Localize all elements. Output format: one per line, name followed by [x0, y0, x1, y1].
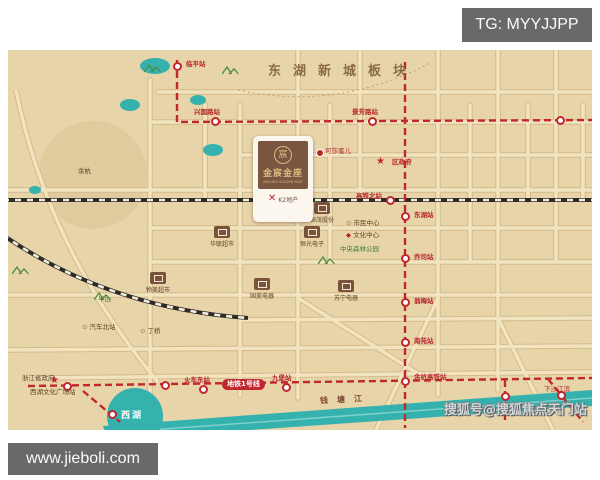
- metro-station-marker: [199, 385, 208, 394]
- map-text-label: 下沙江滨: [544, 386, 570, 393]
- brand-block-label: 华联超市: [202, 239, 242, 248]
- station-label: 乔司站: [414, 254, 434, 261]
- west-lake-label: 西湖: [121, 408, 143, 421]
- station-label: 东湖站: [414, 212, 434, 219]
- map-text-label: ⊙ 市民中心: [346, 220, 380, 227]
- brand-block-icon: [218, 229, 227, 236]
- station-label: 高铁北站: [356, 193, 382, 200]
- tg-contact-badge: TG: MYYJJPP: [462, 8, 592, 42]
- map-label-icon: ◆: [346, 231, 353, 239]
- sohu-watermark: 搜狐号@搜狐焦点天门站: [444, 399, 587, 418]
- map-text-label: ⊙ 汽车北站: [82, 324, 116, 331]
- brand-block: [304, 226, 320, 238]
- mountain-icon: [12, 260, 32, 279]
- brand-block-label: 物美超市: [138, 285, 178, 294]
- map-text-label: 半山: [98, 296, 111, 303]
- project-name-en: JINCHEN GOLDEN SEAT: [263, 179, 302, 183]
- mountain-icon: [318, 250, 338, 269]
- brand-block-label: 苏宁电器: [326, 293, 366, 302]
- brand-block: [338, 280, 354, 292]
- metro-station-marker: [386, 196, 395, 205]
- brand-block-icon: [318, 205, 327, 212]
- project-emblem-icon: 宸: [274, 146, 292, 164]
- map-label-icon: ⊙: [346, 219, 354, 227]
- metro-station-marker: [173, 62, 182, 71]
- map-text-label: ⊙ 丁桥: [140, 328, 161, 335]
- map-text-label: 浙江省政府: [22, 375, 55, 382]
- station-label: 火车东站: [184, 377, 210, 384]
- brand-block-label: 恒光电子: [292, 239, 332, 248]
- metro-station-marker: [368, 117, 377, 126]
- poi-dot-icon: [316, 149, 324, 157]
- project-logo-card: 宸 金宸金座 JINCHEN GOLDEN SEAT ✕ K2地产: [253, 136, 313, 222]
- district-banner-label: 东湖新城板块: [268, 60, 418, 79]
- map-text-label: 区政府: [392, 159, 412, 166]
- project-name: 金宸金座: [263, 166, 303, 179]
- brand-block-icon: [308, 229, 317, 236]
- screenshot-root: 东湖新城板块 地铁1号线 西湖 钱塘江 宸 金宸金座 JINCHEN GOLDE…: [0, 0, 600, 480]
- map-label-icon: ⊙: [140, 327, 148, 335]
- metro-station-marker: [161, 381, 170, 390]
- map-text-label: 西湖文化广场站: [30, 389, 76, 396]
- metro-station-marker: [401, 212, 410, 221]
- brand-block: [254, 278, 270, 290]
- brand-block-icon: [154, 275, 163, 282]
- brand-block: [150, 272, 166, 284]
- metro-station-marker: [211, 117, 220, 126]
- website-watermark: www.jieboli.com: [8, 443, 158, 475]
- map-label-icon: ⊙: [82, 323, 90, 331]
- mountain-icon: [222, 60, 242, 79]
- developer-x-icon: ✕: [268, 194, 276, 204]
- brand-block-icon: [258, 281, 267, 288]
- developer-logo: ✕ K2地产: [268, 194, 298, 204]
- brand-block-icon: [342, 283, 351, 290]
- metro-station-marker: [401, 298, 410, 307]
- brand-block-label: 国美电器: [242, 291, 282, 300]
- brand-block: [314, 202, 330, 214]
- station-label: 翁梅站: [414, 298, 434, 305]
- metro-station-marker: [108, 410, 117, 419]
- station-label: 余杭高铁站: [414, 374, 447, 381]
- metro-station-marker: [556, 116, 565, 125]
- station-label: 景芳路站: [352, 109, 378, 116]
- metro-station-marker: [401, 338, 410, 347]
- mountain-icon: [144, 58, 164, 77]
- location-map: 东湖新城板块 地铁1号线 西湖 钱塘江 宸 金宸金座 JINCHEN GOLDE…: [8, 50, 592, 430]
- station-label: 兴国路站: [194, 109, 220, 116]
- project-emblem-panel: 宸 金宸金座 JINCHEN GOLDEN SEAT: [258, 141, 308, 189]
- metro-station-marker: [401, 254, 410, 263]
- yuhang-label: 余杭: [78, 168, 91, 175]
- station-label: 临平站: [186, 61, 206, 68]
- map-text-label: 中央森林公园: [340, 246, 379, 253]
- metro-station-marker: [282, 383, 291, 392]
- station-label: 南苑站: [414, 338, 434, 345]
- developer-name: K2地产: [278, 195, 298, 204]
- government-star-icon: ★: [376, 157, 385, 167]
- metro-line1-badge: 地铁1号线: [222, 379, 265, 390]
- poi-label: 可莎蜜儿: [325, 148, 351, 155]
- metro-station-marker: [401, 377, 410, 386]
- map-text-label: ◆ 文化中心: [346, 232, 379, 239]
- station-label: 九堡站: [272, 375, 292, 382]
- brand-block: [214, 226, 230, 238]
